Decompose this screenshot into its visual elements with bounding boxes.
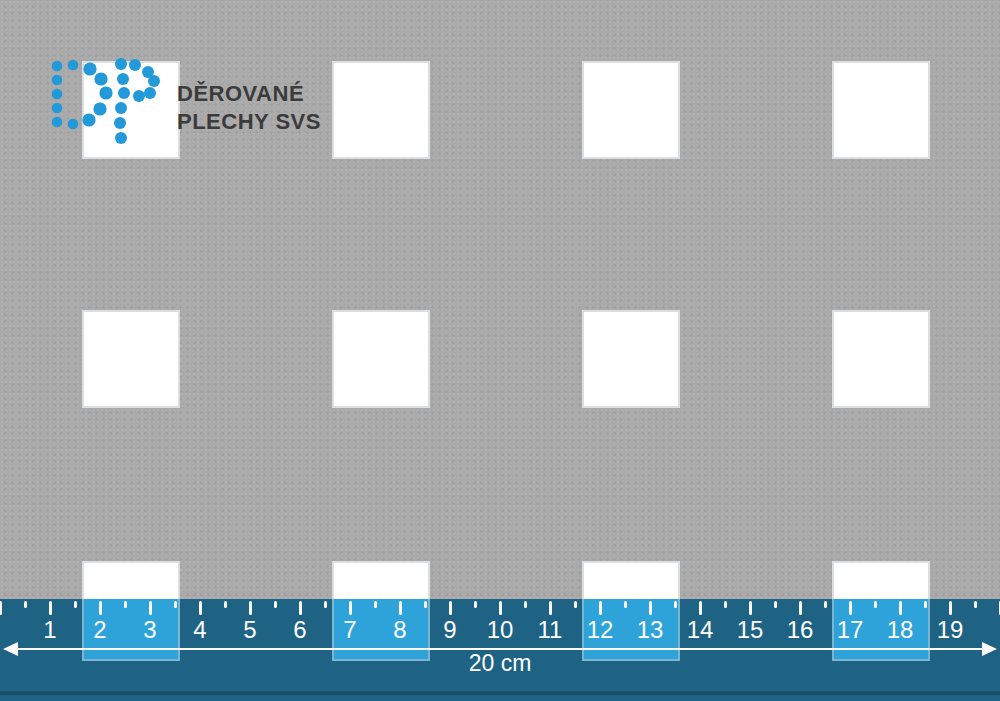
ruler-number: 11	[538, 617, 563, 643]
ruler-arrow-right-icon	[982, 642, 997, 656]
ruler-tick-minor	[24, 601, 27, 608]
ruler-number: 7	[343, 617, 356, 643]
ruler-tick-major	[499, 601, 502, 615]
ruler-number: 12	[587, 617, 614, 643]
ruler-tick-major	[699, 601, 702, 615]
ruler-tick-minor	[424, 601, 427, 608]
ruler-number: 3	[143, 617, 156, 643]
ruler-tick-major	[399, 601, 402, 615]
ruler-tick-major	[49, 601, 52, 615]
ruler-tick-major	[899, 601, 902, 615]
ruler-tick-minor	[324, 601, 327, 608]
ruler-tick-minor	[974, 601, 977, 608]
ruler-number: 6	[293, 617, 306, 643]
ruler-tick-major	[549, 601, 552, 615]
ruler-number: 1	[43, 617, 56, 643]
ruler-tick-minor	[374, 601, 377, 608]
ruler-tick-major	[949, 601, 952, 615]
ruler-number: 19	[937, 617, 964, 643]
ruler-tick-major	[599, 601, 602, 615]
ruler-tick-major	[249, 601, 252, 615]
ruler-tick-minor	[74, 601, 77, 608]
ruler-arrow-left-icon	[3, 642, 18, 656]
ruler-tick-minor	[474, 601, 477, 608]
ruler-tick-minor	[724, 601, 727, 608]
ruler-tick-minor	[574, 601, 577, 608]
ruler-tick-major	[99, 601, 102, 615]
ruler-tick-minor	[624, 601, 627, 608]
ruler-number: 17	[837, 617, 864, 643]
ruler-number: 18	[887, 617, 914, 643]
ruler-tick-major	[299, 601, 302, 615]
ruler-tick-minor	[824, 601, 827, 608]
ruler-tick-minor	[774, 601, 777, 608]
ruler-tick-major	[449, 601, 452, 615]
ruler-tick-major	[349, 601, 352, 615]
ruler-tick-minor	[874, 601, 877, 608]
ruler-tick-minor	[524, 601, 527, 608]
ruler-number: 14	[687, 617, 714, 643]
ruler-tick-minor	[274, 601, 277, 608]
ruler-number: 4	[193, 617, 206, 643]
ruler-tick-major	[199, 601, 202, 615]
ruler-tick-major	[799, 601, 802, 615]
ruler-number: 15	[737, 617, 764, 643]
ruler-tick-minor	[924, 601, 927, 608]
ruler-number: 10	[487, 617, 514, 643]
brand-name-line1: DĚROVANÉ	[177, 80, 321, 108]
ruler-number: 9	[443, 617, 456, 643]
ruler-tick-minor	[674, 601, 677, 608]
ruler-number: 5	[243, 617, 256, 643]
ruler-tick-major	[0, 601, 2, 615]
ruler-tick-minor	[224, 601, 227, 608]
ruler-number: 13	[637, 617, 664, 643]
ruler-tick-minor	[174, 601, 177, 608]
ruler-tick-major	[649, 601, 652, 615]
ruler-number: 8	[393, 617, 406, 643]
ruler-number: 2	[93, 617, 106, 643]
perforated-sheet-preview: 20 cm 12345678910111213141516171819	[0, 0, 1000, 701]
ruler-number: 16	[787, 617, 814, 643]
brand-name: DĚROVANÉ PLECHY SVS	[177, 80, 321, 135]
ruler-tick-minor	[124, 601, 127, 608]
brand-name-line2: PLECHY SVS	[177, 108, 321, 136]
ruler-tick-major	[149, 601, 152, 615]
dp-logo-icon	[50, 56, 168, 148]
ruler-tick-major	[749, 601, 752, 615]
ruler-tick-major	[849, 601, 852, 615]
ruler-length-label: 20 cm	[469, 651, 532, 675]
